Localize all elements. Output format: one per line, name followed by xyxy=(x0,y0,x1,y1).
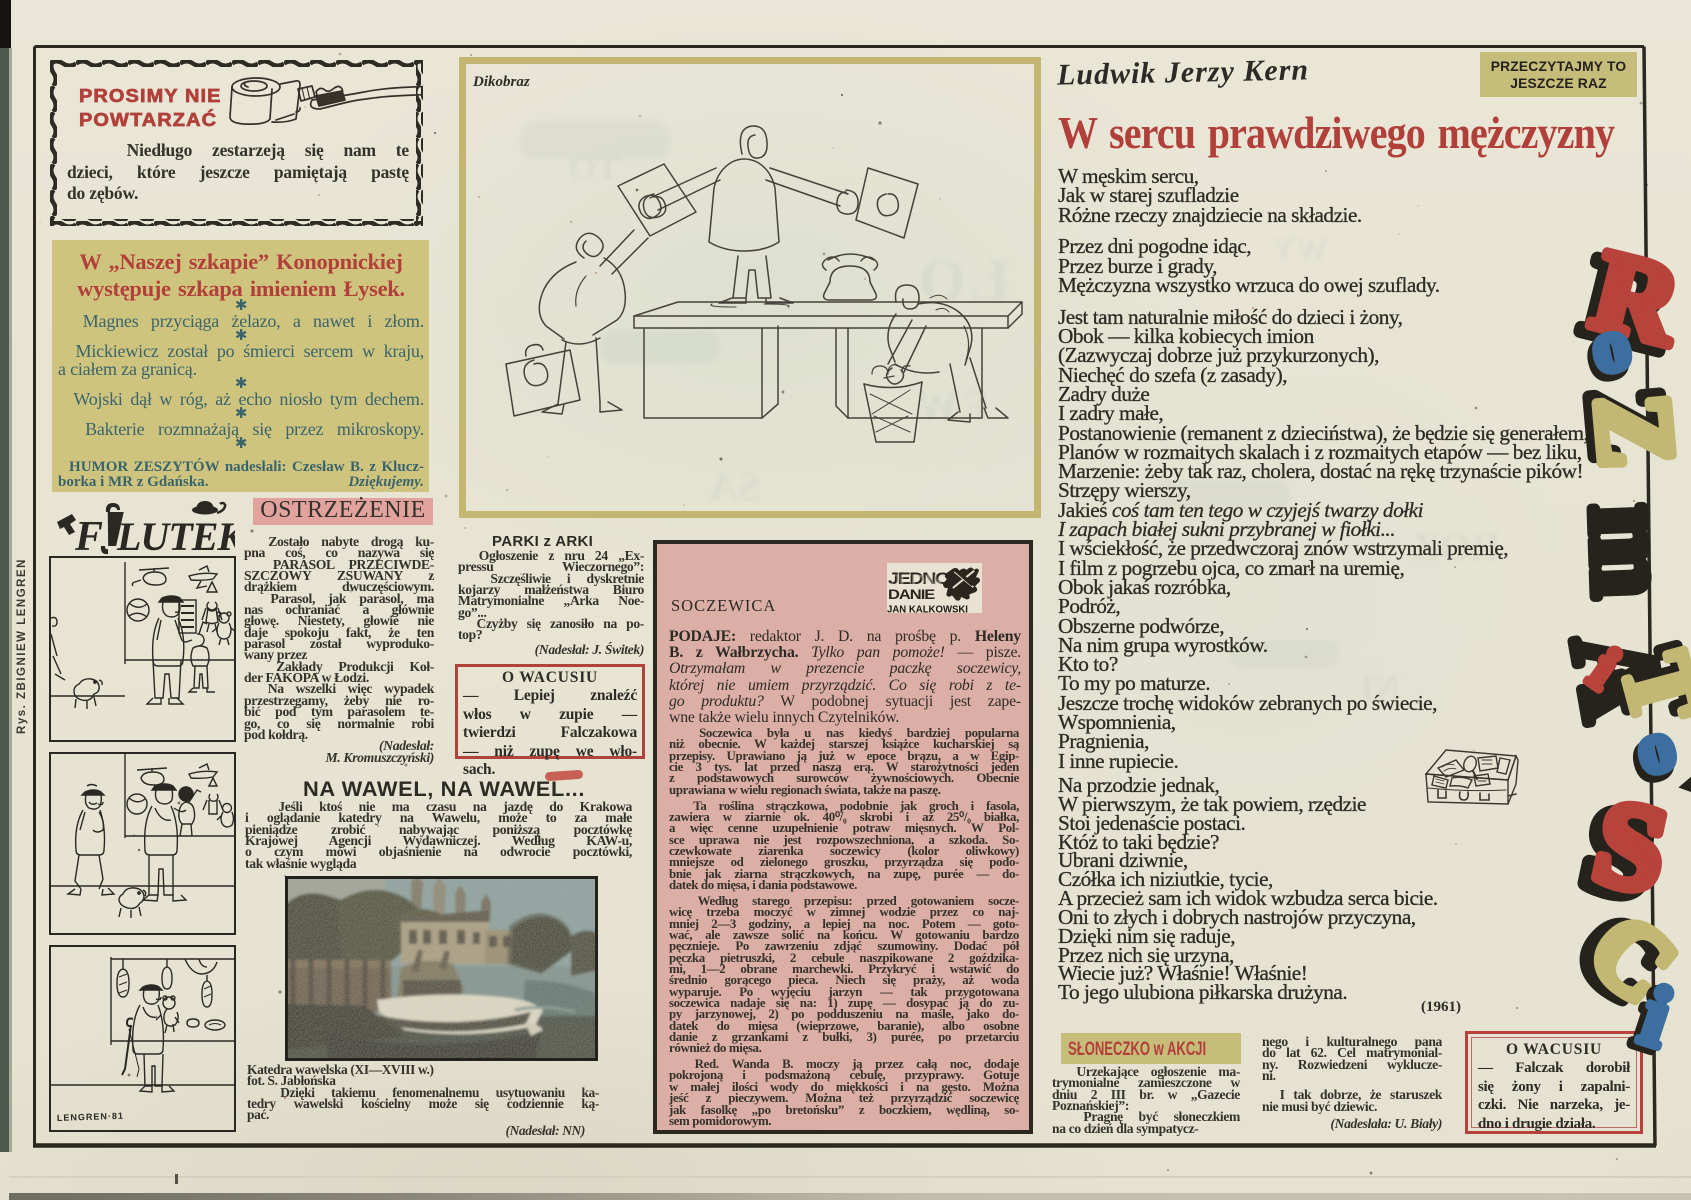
svg-text:JAN KALKOWSKI: JAN KALKOWSKI xyxy=(887,604,968,613)
svg-text:m: m xyxy=(1566,502,1691,600)
svg-text:F: F xyxy=(74,514,103,556)
svg-text:DANIE: DANIE xyxy=(888,587,935,602)
svg-text:Z: Z xyxy=(1572,390,1691,472)
svg-text:JEDNO: JEDNO xyxy=(890,570,952,589)
svg-text:LENGREN·81: LENGREN·81 xyxy=(57,1111,124,1123)
svg-text:LUTEK: LUTEK xyxy=(116,514,235,556)
